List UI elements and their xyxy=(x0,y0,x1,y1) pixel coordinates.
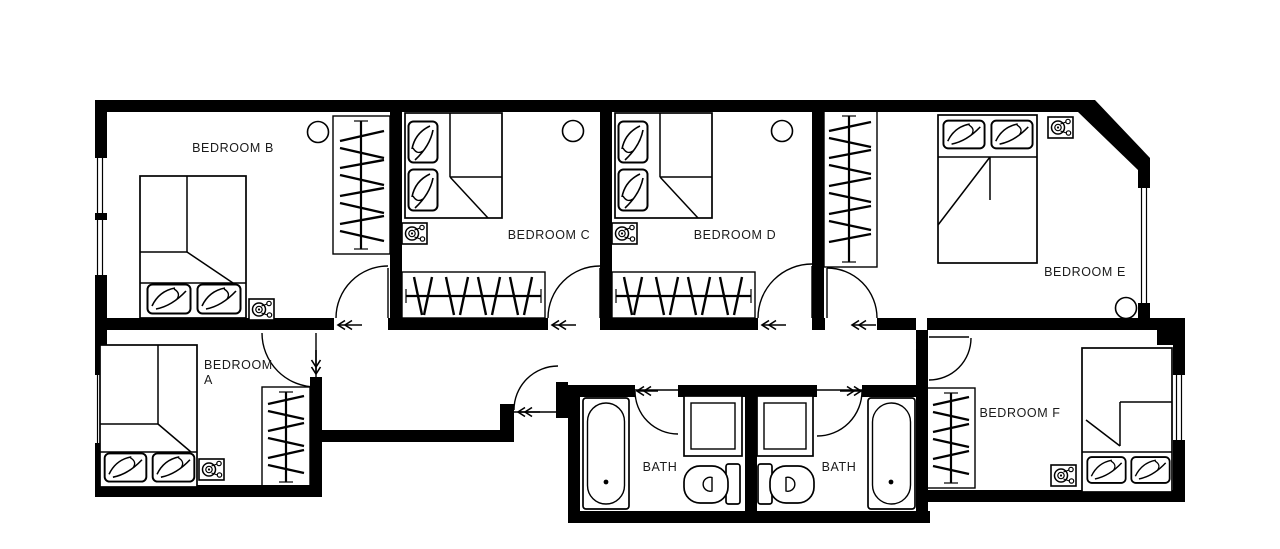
smoke-detector-icon xyxy=(612,223,637,244)
double-bed-icon xyxy=(140,176,246,318)
wall xyxy=(745,385,757,523)
wall xyxy=(600,100,612,330)
diagonal-wall xyxy=(1078,100,1150,188)
pillow-icon xyxy=(1131,457,1169,483)
wall xyxy=(310,430,514,442)
bathtub-icon xyxy=(583,398,629,509)
smoke-detector-icon xyxy=(249,299,274,320)
pillow-icon xyxy=(198,285,241,314)
room-bedroom-d: BEDROOM D xyxy=(612,113,812,330)
double-bed-icon xyxy=(938,115,1037,263)
wall xyxy=(568,385,635,397)
wardrobe-icon xyxy=(333,116,390,254)
ceiling-light-icon xyxy=(772,121,793,142)
wall xyxy=(500,404,514,442)
room-bath-right: BATH xyxy=(757,387,915,510)
door-swing xyxy=(758,264,812,330)
pillow-icon xyxy=(409,170,438,211)
room-label: BEDROOM xyxy=(204,358,273,372)
entry-arrow xyxy=(637,387,658,396)
door-swing xyxy=(548,266,600,330)
pillow-icon xyxy=(619,122,648,163)
room-bedroom-e: BEDROOM E xyxy=(824,111,1137,330)
smoke-detector-icon xyxy=(1051,465,1076,486)
drain-icon xyxy=(604,480,609,485)
door-swing xyxy=(635,387,678,435)
entry-arrow xyxy=(552,321,576,330)
smoke-detector-icon xyxy=(402,223,427,244)
shower-icon xyxy=(684,396,742,456)
room-bedroom-b: BEDROOM B xyxy=(140,116,390,330)
room-bedroom-a: BEDROOM A xyxy=(100,333,321,487)
drain-icon xyxy=(889,480,894,485)
smoke-detector-icon xyxy=(1048,117,1073,138)
pillow-icon xyxy=(943,121,984,149)
room-label: BEDROOM E xyxy=(1044,265,1126,279)
toilet-icon xyxy=(758,464,814,504)
double-bed-icon xyxy=(1082,348,1172,492)
window xyxy=(95,158,107,213)
room-bedroom-c: BEDROOM C xyxy=(402,113,600,330)
pillow-icon xyxy=(409,122,438,163)
double-bed-icon xyxy=(405,113,502,218)
bathtub-icon xyxy=(868,398,915,509)
wall xyxy=(568,511,930,523)
room-label: BATH xyxy=(822,460,857,474)
entry-arrow xyxy=(762,321,786,330)
entry-arrow xyxy=(338,321,362,330)
room-label: BEDROOM F xyxy=(979,406,1060,420)
entry-arrow xyxy=(852,321,876,330)
wardrobe-icon xyxy=(262,387,310,487)
door-swing xyxy=(827,268,877,330)
window xyxy=(1177,375,1182,440)
room-label: BEDROOM B xyxy=(192,141,274,155)
wall xyxy=(390,100,402,330)
wardrobe-icon xyxy=(824,111,877,267)
floor-plan: BEDROOM B xyxy=(0,0,1280,549)
window xyxy=(1142,188,1147,303)
ceiling-light-icon xyxy=(1116,298,1137,319)
entry-arrow xyxy=(840,387,861,396)
wall xyxy=(95,100,1088,112)
pillow-icon xyxy=(991,121,1032,149)
entry-arrow xyxy=(518,408,540,417)
door-swing xyxy=(336,266,388,330)
door-swing xyxy=(817,387,862,437)
wardrobe-icon xyxy=(927,388,975,488)
wardrobe-icon xyxy=(612,272,755,318)
ceiling-light-icon xyxy=(308,122,329,143)
pillow-icon xyxy=(148,285,191,314)
double-bed-icon xyxy=(100,345,197,487)
pillow-icon xyxy=(105,453,147,481)
toilet-icon xyxy=(684,464,740,504)
wall xyxy=(568,385,580,523)
door-swing xyxy=(514,366,558,417)
wall xyxy=(600,318,758,330)
wall xyxy=(862,385,916,397)
ceiling-light-icon xyxy=(563,121,584,142)
wall xyxy=(812,318,825,330)
wall xyxy=(388,318,548,330)
wall xyxy=(95,318,334,330)
wall xyxy=(1157,318,1185,345)
pillow-icon xyxy=(153,453,195,481)
wall xyxy=(877,318,916,330)
room-label: BEDROOM C xyxy=(508,228,591,242)
entry-arrow xyxy=(312,350,321,374)
wall xyxy=(927,318,1157,330)
wall xyxy=(556,382,568,418)
window xyxy=(95,220,107,275)
wardrobe-icon xyxy=(402,272,545,318)
room-label-line2: A xyxy=(204,373,213,387)
room-bath-left: BATH xyxy=(583,387,742,510)
shower-icon xyxy=(757,396,813,456)
wall xyxy=(812,100,824,330)
pillow-icon xyxy=(1087,457,1125,483)
room-bedroom-f: BEDROOM F xyxy=(917,336,1173,492)
double-bed-icon xyxy=(615,113,712,218)
smoke-detector-icon xyxy=(199,459,224,480)
wall xyxy=(1173,345,1185,375)
room-label: BEDROOM D xyxy=(694,228,777,242)
pillow-icon xyxy=(619,170,648,211)
floor-plan-page: BEDROOM B xyxy=(0,0,1280,549)
hallway xyxy=(514,366,558,417)
room-label: BATH xyxy=(643,460,678,474)
